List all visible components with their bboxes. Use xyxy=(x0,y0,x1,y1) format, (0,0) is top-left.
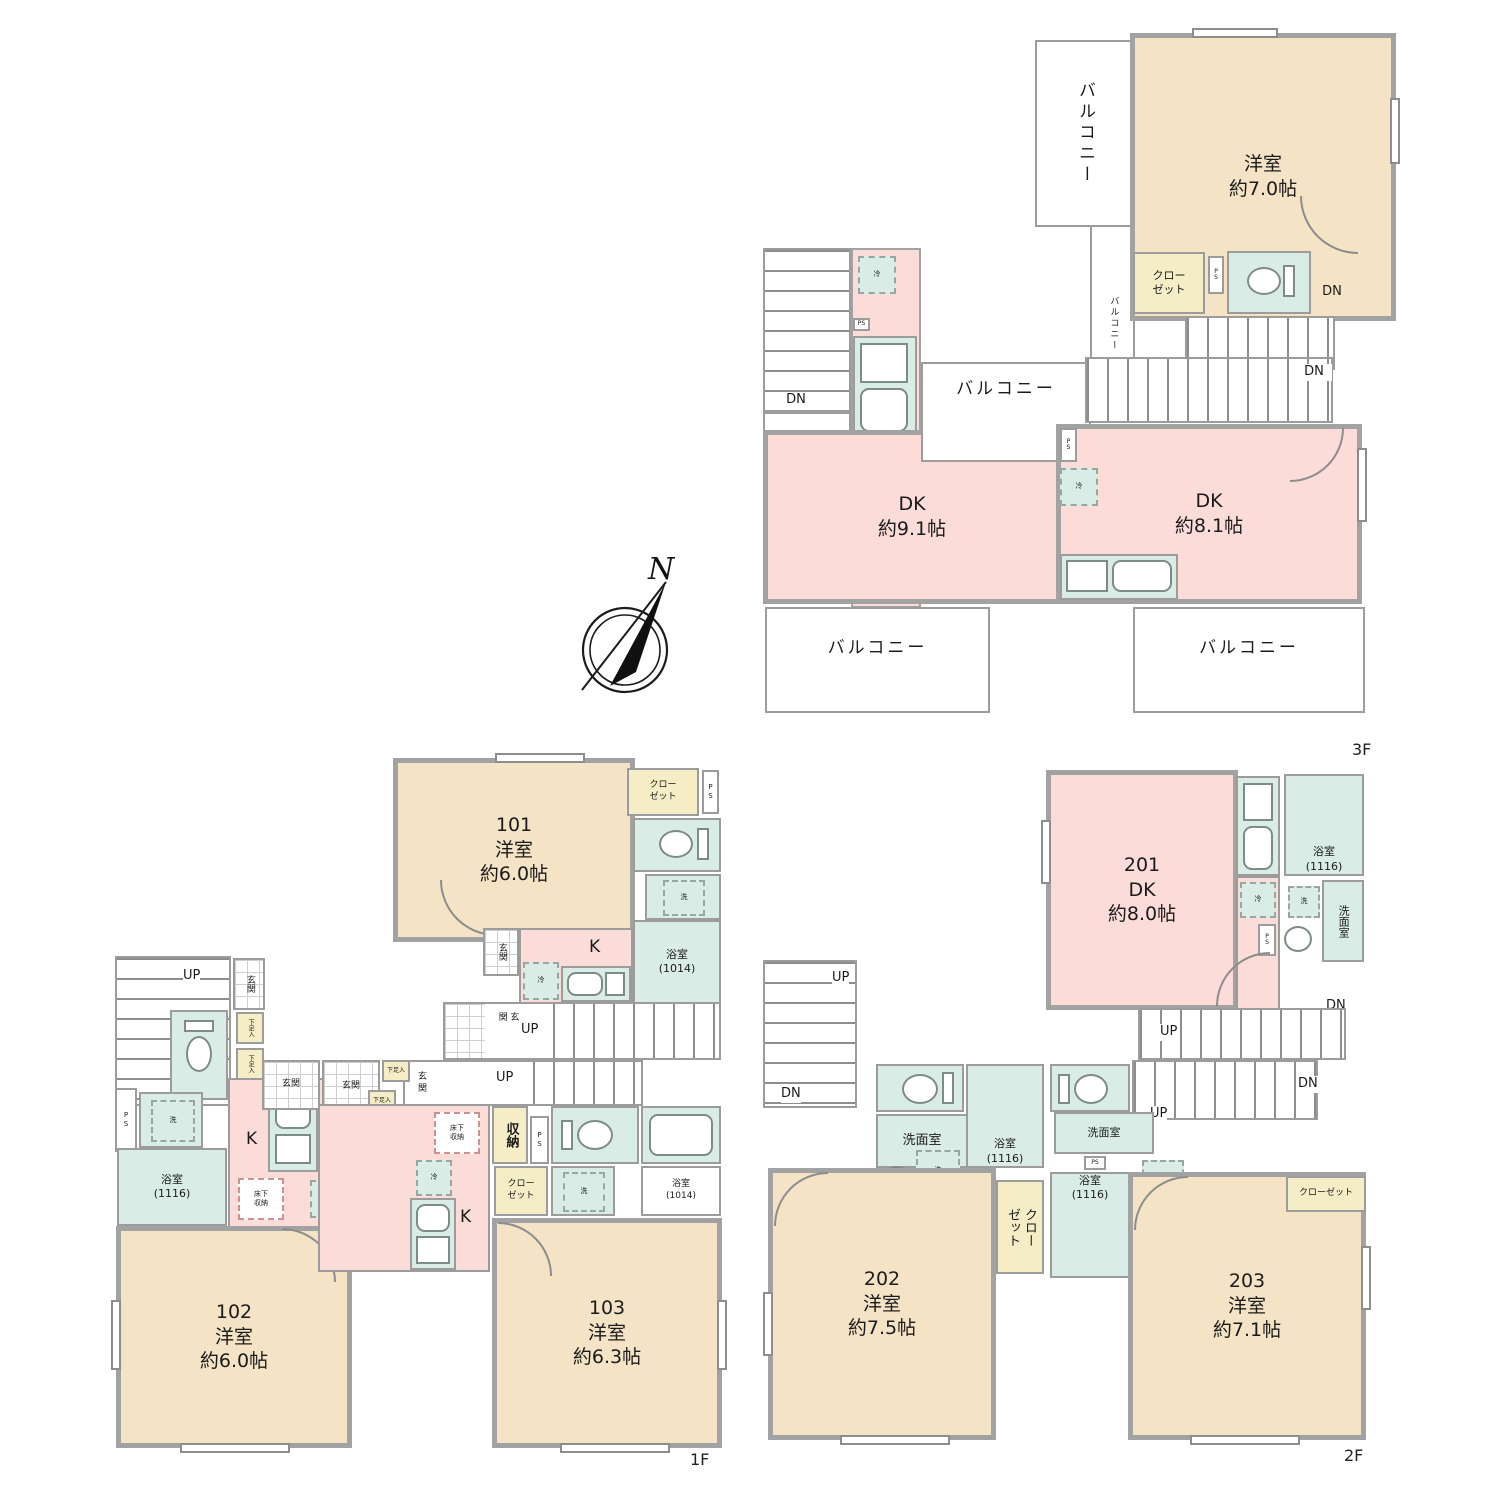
f1-toilet-102 xyxy=(170,1010,228,1100)
f1-shoebox-2: 下足入 xyxy=(236,1048,264,1080)
f2-ps-203: PS xyxy=(1084,1156,1106,1170)
f2-toilet-202-icon xyxy=(902,1074,938,1104)
f2-fridge-201: 冷 xyxy=(1240,882,1276,918)
f3-sink-icon-91 xyxy=(860,388,908,432)
f1-stove-101-icon xyxy=(605,972,625,996)
f3-toilet-room xyxy=(1227,251,1311,314)
f2-bath-202: 浴室 (1116) xyxy=(966,1064,1044,1168)
f1-tub-103 xyxy=(641,1106,721,1164)
f2-up-left: UP xyxy=(832,970,849,987)
f2-window-203-right xyxy=(1361,1246,1371,1310)
f1-bath-101: 浴室 (1014) xyxy=(633,920,721,1004)
f3-window-right-2 xyxy=(1357,448,1367,522)
f1-up-left: UP xyxy=(183,968,200,985)
f1-laundry-103-box: 洗 xyxy=(563,1172,605,1212)
f1-genkan-c2-label: 玄関 xyxy=(342,1081,360,1093)
f3-fridge-1: 冷 xyxy=(858,256,896,294)
f2-sink-201-icon xyxy=(1243,826,1273,870)
f1-sink-103-icon xyxy=(416,1204,450,1232)
f1-shoebox-1-label: 下足入 xyxy=(247,1019,253,1037)
f2-washroom-201: 洗面室 xyxy=(1322,880,1364,962)
f1-toilet-102-tank-icon xyxy=(184,1020,214,1032)
f3-dn-label-3: DN xyxy=(1296,364,1332,381)
f3-ps-1: P S xyxy=(1208,256,1224,294)
compass: N xyxy=(560,550,720,710)
f1-laundry-101: 洗 xyxy=(645,874,721,920)
f2-up-center: UP xyxy=(1160,1024,1177,1041)
f3-balcony-top-label: バルコニー xyxy=(1074,81,1096,186)
f1-genkan-left: 玄関 xyxy=(233,958,265,1010)
f2-basin-201-icon xyxy=(1284,926,1312,952)
f3-balcony-inner-label: バルコニー xyxy=(1107,296,1119,351)
f1-ps-103: P S xyxy=(530,1116,549,1164)
f1-toilet-103 xyxy=(551,1106,639,1164)
f1-toilet-101-tank-icon xyxy=(697,828,709,860)
f3-dn-label-1: DN xyxy=(1314,284,1350,301)
f1-window-101-top xyxy=(495,753,585,763)
f1-window-102-left xyxy=(111,1300,121,1370)
f2-closet-203: クローゼット xyxy=(1286,1176,1366,1212)
f3-stove-icon-81 xyxy=(1066,560,1108,592)
f1-window-102-bottom xyxy=(180,1443,290,1453)
f1-laundry-103: 洗 xyxy=(551,1166,615,1216)
f1-up-b: UP xyxy=(496,1070,513,1087)
f1-closet-103: クロー ゼット xyxy=(494,1166,548,1216)
f1-up-a: UP xyxy=(521,1022,538,1039)
f3-window-right-1 xyxy=(1390,98,1400,164)
f3-balcony-mid-label: バルコニー xyxy=(956,378,1056,400)
f1-genkan-a xyxy=(445,1004,485,1058)
f1-toilet-101-icon xyxy=(659,830,693,858)
f2-dn-left: DN xyxy=(781,1086,801,1103)
f3-floor-label: 3F xyxy=(1352,740,1371,759)
f2-toilet-202 xyxy=(876,1064,964,1112)
f1-genkan-101: 玄関 xyxy=(483,928,519,976)
f2-bath-201: 浴室 (1116) xyxy=(1284,774,1364,876)
f3-dn-label-2: DN xyxy=(776,392,816,409)
f2-washroom-201-label: 洗面室 xyxy=(1336,905,1350,938)
f3-ps-3: P S xyxy=(1060,428,1077,462)
f1-shoebox-3-label: 下足入 xyxy=(387,1068,405,1074)
f1-stove-102-icon xyxy=(275,1134,311,1164)
f2-laundry-201-box: 洗 xyxy=(1288,886,1320,918)
f1-kitchen-102-label: K xyxy=(246,1128,257,1150)
f1-stove-103-icon xyxy=(416,1236,450,1264)
f3-sink-icon-81 xyxy=(1112,560,1172,592)
f3-window-top xyxy=(1192,28,1278,38)
f2-closet-202-label: クロー ゼット xyxy=(1003,1208,1037,1247)
f3-kitchen-unit-81 xyxy=(1060,554,1178,600)
f2-dn-right: DN xyxy=(1298,1076,1318,1093)
f1-floorstorage-102: 床下 収納 xyxy=(238,1178,284,1220)
f1-genkan-a-label: 玄関 xyxy=(495,1012,518,1021)
f1-window-103-bottom xyxy=(560,1443,670,1453)
f1-genkan-c1: 玄関 xyxy=(262,1060,320,1110)
f1-shoebox-3: 下足入 xyxy=(382,1060,410,1082)
f1-tub-103-icon xyxy=(649,1114,713,1156)
f1-kitchen-103-label: K xyxy=(460,1206,471,1228)
f3-toilet-icon xyxy=(1247,267,1281,295)
f1-genkan-left-label: 玄関 xyxy=(243,975,255,993)
f1-genkan-101-label: 玄関 xyxy=(495,943,507,961)
f1-kitchen-101-label: K xyxy=(589,936,600,958)
f3-balcony-top: バルコニー xyxy=(1035,40,1135,227)
f2-floor-label: 2F xyxy=(1344,1446,1363,1465)
f2-toilet-203 xyxy=(1050,1064,1130,1112)
f1-counter-101 xyxy=(561,966,631,1002)
f1-shoebox-2-label: 下足入 xyxy=(247,1055,253,1073)
f1-stairs-b xyxy=(533,1062,641,1104)
f1-counter-103 xyxy=(410,1198,456,1270)
f3-ps-2: PS xyxy=(853,318,870,331)
f1-room-101: 101 洋室 約6.0帖 xyxy=(393,758,635,942)
f1-storage-103: 収納 xyxy=(492,1106,528,1164)
f3-fridge-2: 冷 xyxy=(1060,468,1098,506)
f3-toilet-tank-icon xyxy=(1283,265,1295,297)
f1-laundry-101-box: 洗 xyxy=(663,880,705,916)
f1-genkan-b-label: 玄関 xyxy=(418,1072,427,1095)
f1-closet-101: クロー ゼット xyxy=(627,768,699,816)
f1-fridge-103: 冷 xyxy=(416,1160,452,1196)
f1-shoebox-1: 下足入 xyxy=(236,1012,264,1044)
f1-floor-label: 1F xyxy=(690,1450,709,1469)
f1-floorstorage-103: 床下 収納 xyxy=(434,1112,480,1154)
f3-stove-icon-91 xyxy=(860,343,908,383)
f3-kitchen-unit-91 xyxy=(853,336,917,442)
f2-room-201: 201 DK 約8.0帖 xyxy=(1046,770,1238,1010)
f1-laundry-102: 洗 xyxy=(139,1092,203,1148)
f1-toilet-101 xyxy=(633,818,721,872)
f2-window-202-left xyxy=(763,1292,773,1356)
compass-north-label: N xyxy=(648,552,674,587)
f2-washroom-203: 洗面室 xyxy=(1054,1112,1154,1154)
f1-bath-102: 浴室 (1116) xyxy=(117,1148,227,1226)
f1-laundry-102-box: 洗 xyxy=(151,1100,195,1142)
f1-toilet-102-icon xyxy=(186,1036,212,1072)
floorplan-canvas: { "compass": { "north": "N" }, "common":… xyxy=(0,0,1500,1500)
f1-stairs-a xyxy=(553,1004,719,1058)
f2-closet-202: クロー ゼット xyxy=(996,1180,1044,1274)
f1-bath-103: 浴室 (1014) xyxy=(641,1166,721,1216)
f2-window-203-bottom xyxy=(1190,1435,1300,1445)
f1-toilet-103-icon xyxy=(577,1120,613,1150)
f2-toilet-203-icon xyxy=(1074,1074,1108,1104)
f1-toilet-103-tank-icon xyxy=(561,1120,573,1150)
f3-stairs-left xyxy=(763,248,851,412)
f1-sink-101-icon xyxy=(567,972,603,996)
f2-stove-201-icon xyxy=(1243,783,1273,821)
f1-ps-102: P S xyxy=(115,1088,137,1152)
f2-toilet-202-tank-icon xyxy=(942,1072,954,1104)
f1-ps-101: P S xyxy=(702,770,719,814)
f2-window-201-left xyxy=(1041,820,1051,884)
f3-balcony-br: バルコニー xyxy=(1133,607,1365,713)
f2-window-202-bottom xyxy=(840,1435,950,1445)
compass-icon xyxy=(560,550,720,710)
f1-window-103-right xyxy=(717,1300,727,1370)
f1-genkan-c1-label: 玄関 xyxy=(282,1079,300,1091)
f3-balcony-bl-label: バルコニー xyxy=(828,637,928,659)
f3-balcony-bl: バルコニー xyxy=(765,607,990,713)
f1-fridge-101: 冷 xyxy=(523,962,559,1000)
f2-bath-203: 浴室 (1116) xyxy=(1050,1172,1130,1278)
f2-kitchen-201 xyxy=(1236,776,1280,876)
f1-storage-103-label: 収納 xyxy=(502,1122,519,1148)
f2-toilet-203-tank-icon xyxy=(1058,1074,1070,1104)
f3-closet: クロー ゼット xyxy=(1133,252,1205,314)
f3-balcony-br-label: バルコニー xyxy=(1199,637,1299,659)
